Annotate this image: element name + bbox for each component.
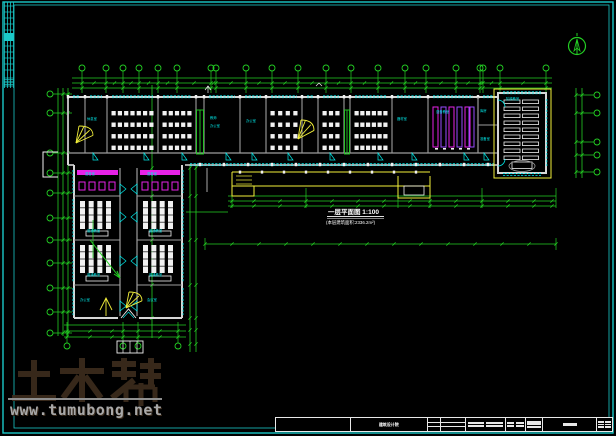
desk bbox=[143, 245, 148, 252]
door-swing bbox=[131, 184, 137, 194]
desk bbox=[143, 259, 148, 266]
stair-fan bbox=[298, 130, 314, 139]
title-block-mark bbox=[605, 421, 611, 423]
title-block-cell bbox=[441, 418, 466, 431]
title-block-grid bbox=[507, 422, 524, 428]
column-mark bbox=[391, 163, 393, 166]
desk bbox=[372, 134, 376, 138]
desk bbox=[293, 134, 297, 138]
title-block: 建筑设计院 bbox=[275, 417, 613, 432]
desk bbox=[160, 259, 165, 266]
watermark-url: www.tumubong.net bbox=[10, 401, 163, 419]
desk bbox=[378, 134, 382, 138]
desk bbox=[169, 134, 173, 138]
door-swing bbox=[120, 184, 126, 194]
lab-band bbox=[140, 170, 180, 175]
column-mark bbox=[203, 95, 205, 98]
column-mark bbox=[295, 163, 297, 166]
column-mark bbox=[106, 95, 108, 98]
desk bbox=[293, 111, 297, 115]
desk bbox=[278, 146, 282, 150]
desk bbox=[151, 259, 156, 266]
desk bbox=[151, 252, 156, 259]
room-label: 普通教室 bbox=[149, 228, 163, 233]
desk bbox=[118, 134, 122, 138]
lab-desk bbox=[162, 182, 168, 190]
desk bbox=[89, 208, 94, 215]
door-swing bbox=[131, 212, 137, 222]
desk bbox=[80, 259, 85, 266]
desk bbox=[335, 111, 339, 115]
axis-bubble bbox=[47, 190, 53, 196]
desk bbox=[149, 146, 153, 150]
lab-band bbox=[77, 170, 118, 175]
title-block-mark bbox=[598, 421, 604, 423]
hall-bench bbox=[504, 128, 520, 132]
column-mark bbox=[427, 95, 429, 98]
column-mark bbox=[391, 95, 393, 98]
axis-bubble bbox=[453, 65, 459, 71]
desk bbox=[187, 146, 191, 150]
desk bbox=[360, 123, 364, 127]
desk bbox=[143, 146, 147, 150]
desk bbox=[168, 215, 173, 222]
title-block-logo bbox=[527, 420, 541, 429]
title-block-cell bbox=[466, 418, 506, 431]
door-swing bbox=[226, 153, 231, 160]
door-swing bbox=[498, 159, 505, 166]
desk bbox=[143, 208, 148, 215]
title-block-mark bbox=[486, 422, 503, 424]
canopy-column bbox=[239, 171, 241, 174]
desk bbox=[149, 111, 153, 115]
desk bbox=[175, 123, 179, 127]
title-block-drawing-name bbox=[563, 423, 577, 426]
desk bbox=[355, 123, 359, 127]
desk bbox=[106, 245, 111, 252]
desk bbox=[366, 111, 370, 115]
desk bbox=[80, 215, 85, 222]
axis-bubble bbox=[47, 330, 53, 336]
desk bbox=[329, 146, 333, 150]
desk bbox=[378, 111, 382, 115]
desk bbox=[271, 111, 275, 115]
desk bbox=[323, 134, 327, 138]
lab-desk bbox=[89, 182, 95, 190]
desk bbox=[80, 252, 85, 259]
title-block-mark bbox=[598, 424, 604, 426]
desk bbox=[181, 111, 185, 115]
desk bbox=[80, 201, 85, 208]
title-block-logo-bar bbox=[527, 426, 541, 428]
entry-door bbox=[121, 309, 136, 318]
desk bbox=[80, 245, 85, 252]
desk bbox=[181, 123, 185, 127]
room-label: 器材室 bbox=[397, 116, 408, 121]
desk bbox=[372, 123, 376, 127]
desk bbox=[323, 146, 327, 150]
hall-bench bbox=[523, 142, 539, 146]
desk bbox=[169, 146, 173, 150]
desk bbox=[278, 111, 282, 115]
title-block-mark bbox=[507, 422, 515, 424]
column-mark bbox=[317, 95, 319, 98]
door-swing bbox=[120, 212, 126, 222]
canopy-column bbox=[305, 171, 307, 174]
title-block-grid bbox=[468, 422, 503, 428]
axis-bubble bbox=[295, 65, 301, 71]
room-label: 教师 bbox=[210, 115, 217, 120]
desk bbox=[293, 146, 297, 150]
desk bbox=[80, 267, 85, 274]
desk bbox=[286, 111, 290, 115]
axis-bubble bbox=[79, 65, 85, 71]
desk bbox=[97, 201, 102, 208]
desk bbox=[163, 146, 167, 150]
axis-bubble bbox=[135, 343, 141, 349]
desk bbox=[124, 123, 128, 127]
title-block-row bbox=[428, 427, 440, 431]
desk bbox=[168, 201, 173, 208]
desk bbox=[112, 146, 116, 150]
desk bbox=[112, 123, 116, 127]
desk bbox=[143, 201, 148, 208]
door-swing bbox=[484, 153, 489, 160]
desk bbox=[175, 134, 179, 138]
axis-bubble bbox=[136, 65, 142, 71]
desk bbox=[278, 123, 282, 127]
desk bbox=[329, 111, 333, 115]
title-block-mark bbox=[507, 425, 515, 427]
axis-bubble bbox=[47, 170, 53, 176]
lab-desk bbox=[109, 182, 115, 190]
column-mark bbox=[67, 95, 69, 98]
lab-bench bbox=[457, 107, 462, 147]
desk bbox=[151, 245, 156, 252]
desk bbox=[89, 259, 94, 266]
desk bbox=[169, 123, 173, 127]
desk bbox=[168, 223, 173, 230]
door-swing bbox=[144, 153, 149, 160]
desk bbox=[323, 123, 327, 127]
title-block-text: 建筑设计院 bbox=[379, 422, 399, 428]
desk bbox=[106, 201, 111, 208]
canopy-column bbox=[393, 171, 395, 174]
column-mark bbox=[343, 163, 345, 166]
title-block-cell bbox=[276, 418, 351, 431]
desk bbox=[97, 215, 102, 222]
axis-bubble bbox=[47, 110, 53, 116]
title-block-mark bbox=[605, 424, 611, 426]
column-mark bbox=[343, 95, 345, 98]
title-block-mark bbox=[516, 422, 524, 424]
title-block-rows bbox=[441, 418, 465, 431]
axis-bubble bbox=[47, 237, 53, 243]
desk bbox=[187, 134, 191, 138]
desk bbox=[160, 208, 165, 215]
column-mark bbox=[367, 163, 369, 166]
axis-bubble bbox=[594, 139, 600, 145]
lab-mark bbox=[435, 148, 438, 150]
desk bbox=[143, 267, 148, 274]
door-swing bbox=[288, 153, 293, 160]
desk bbox=[106, 267, 111, 274]
hall-bench bbox=[504, 114, 520, 118]
desk bbox=[372, 111, 376, 115]
door-swing bbox=[252, 153, 257, 160]
watermark-divider bbox=[8, 398, 162, 400]
room-label: 普通教室 bbox=[87, 228, 101, 233]
title-block-cell bbox=[597, 418, 612, 431]
desk bbox=[130, 134, 134, 138]
hall-bench bbox=[504, 142, 520, 146]
room-label: 会议室 bbox=[147, 297, 158, 302]
desk bbox=[293, 123, 297, 127]
title-block-mark bbox=[605, 426, 611, 428]
axis-bubble bbox=[120, 65, 126, 71]
desk bbox=[271, 123, 275, 127]
desk bbox=[160, 215, 165, 222]
desk bbox=[106, 252, 111, 259]
canopy-column bbox=[327, 171, 329, 174]
generated-drawing: 休息室教师办公室办公室器材室语音教室库房准备室阶梯教室语音室语音室普通教室普通教… bbox=[3, 2, 613, 433]
title-block-logo-bar bbox=[527, 421, 541, 425]
column-mark bbox=[223, 163, 225, 166]
desk bbox=[329, 134, 333, 138]
door-swing bbox=[131, 256, 137, 266]
room-label: 语音教室 bbox=[436, 109, 450, 114]
desk bbox=[169, 111, 173, 115]
desk bbox=[383, 123, 387, 127]
lab-desk bbox=[142, 182, 148, 190]
desk bbox=[168, 252, 173, 259]
axis-bubble bbox=[103, 65, 109, 71]
desk bbox=[143, 111, 147, 115]
level-mark bbox=[205, 86, 211, 93]
column-mark bbox=[463, 163, 465, 166]
canopy-column bbox=[371, 171, 373, 174]
title-block-cell bbox=[506, 418, 526, 431]
desk bbox=[355, 111, 359, 115]
entry-door-swing bbox=[123, 312, 134, 318]
plan-subtitle: (本层建筑面积:2336.2m²) bbox=[326, 219, 376, 226]
column-mark bbox=[271, 163, 273, 166]
desk bbox=[366, 123, 370, 127]
cad-drawing-page: 休息室教师办公室办公室器材室语音教室库房准备室阶梯教室语音室语音室普通教室普通教… bbox=[0, 0, 616, 436]
door-swing bbox=[182, 153, 187, 160]
door-swing bbox=[412, 153, 417, 160]
axis-bubble bbox=[497, 65, 503, 71]
desk bbox=[106, 208, 111, 215]
canopy-column bbox=[261, 171, 263, 174]
door-swing bbox=[120, 256, 126, 266]
desk bbox=[112, 134, 116, 138]
title-block-cell bbox=[428, 418, 441, 431]
page-border-outer bbox=[3, 2, 613, 433]
desk bbox=[163, 134, 167, 138]
axis-bubble bbox=[594, 92, 600, 98]
column-mark bbox=[157, 95, 159, 98]
desk bbox=[112, 111, 116, 115]
title-block-mark bbox=[486, 425, 503, 427]
desk bbox=[80, 208, 85, 215]
desk bbox=[187, 111, 191, 115]
axis-bubble bbox=[47, 309, 53, 315]
desk bbox=[335, 123, 339, 127]
room-label: 普通教室 bbox=[149, 272, 163, 277]
column-mark bbox=[195, 95, 197, 98]
column-mark bbox=[301, 95, 303, 98]
level-mark bbox=[316, 83, 322, 86]
lab-mark bbox=[467, 148, 470, 150]
axis-bubble bbox=[594, 152, 600, 158]
axis-bubble bbox=[47, 91, 53, 97]
axis-bubble bbox=[323, 65, 329, 71]
desk bbox=[378, 123, 382, 127]
desk bbox=[168, 245, 173, 252]
title-block-mark bbox=[468, 425, 485, 427]
room-label: 库房 bbox=[480, 108, 487, 113]
stair-arrow bbox=[100, 298, 112, 316]
desk bbox=[143, 123, 147, 127]
axis-bubble bbox=[64, 343, 70, 349]
desk bbox=[143, 223, 148, 230]
hall-bench bbox=[523, 135, 539, 139]
desk bbox=[151, 215, 156, 222]
room-label: 语音室 bbox=[85, 171, 96, 176]
plan-title: 一层平面图 1:100 bbox=[328, 207, 379, 216]
desk bbox=[137, 134, 141, 138]
title-block-mark bbox=[598, 426, 604, 428]
axis-bubble bbox=[543, 65, 549, 71]
axis-bubble bbox=[243, 65, 249, 71]
axis-bubble bbox=[423, 65, 429, 71]
column-mark bbox=[349, 95, 351, 98]
axis-bubble bbox=[155, 65, 161, 71]
desk bbox=[278, 134, 282, 138]
desk bbox=[97, 259, 102, 266]
hall-bench bbox=[523, 107, 539, 111]
lab-desk bbox=[79, 182, 85, 190]
desk bbox=[335, 146, 339, 150]
room-label: 语音室 bbox=[147, 171, 158, 176]
column-mark bbox=[247, 163, 249, 166]
column-mark bbox=[239, 95, 241, 98]
desk bbox=[124, 134, 128, 138]
desk bbox=[143, 134, 147, 138]
door-swing bbox=[378, 153, 383, 160]
door-swing bbox=[464, 153, 469, 160]
axis-bubble bbox=[175, 343, 181, 349]
hall-bench bbox=[504, 135, 520, 139]
desk bbox=[175, 146, 179, 150]
desk bbox=[137, 111, 141, 115]
desk bbox=[360, 134, 364, 138]
title-block-cell bbox=[526, 418, 544, 431]
desk bbox=[151, 208, 156, 215]
room-label: 办公室 bbox=[210, 123, 221, 128]
title-block-rows bbox=[428, 418, 440, 431]
desk bbox=[106, 215, 111, 222]
desk bbox=[163, 111, 167, 115]
desk bbox=[286, 146, 290, 150]
desk bbox=[80, 223, 85, 230]
desk bbox=[366, 134, 370, 138]
column-mark bbox=[319, 163, 321, 166]
hall-bench bbox=[523, 156, 539, 160]
column-mark bbox=[199, 163, 201, 166]
desk bbox=[137, 123, 141, 127]
lab-bench bbox=[449, 107, 454, 147]
door-swing bbox=[93, 153, 98, 160]
hall-bench bbox=[504, 107, 520, 111]
desk bbox=[160, 252, 165, 259]
column-mark bbox=[84, 95, 86, 98]
desk bbox=[366, 146, 370, 150]
axis-bubble bbox=[348, 65, 354, 71]
canopy-column bbox=[283, 171, 285, 174]
title-block-cell bbox=[543, 418, 597, 431]
porch-landing bbox=[404, 186, 424, 195]
desk bbox=[168, 208, 173, 215]
desk bbox=[143, 252, 148, 259]
column-detail-block bbox=[4, 33, 14, 41]
hall-bench bbox=[523, 128, 539, 132]
lab-mark bbox=[443, 148, 446, 150]
desk bbox=[383, 111, 387, 115]
podium bbox=[512, 162, 532, 169]
lab-desk bbox=[99, 182, 105, 190]
desk bbox=[378, 146, 382, 150]
desk bbox=[124, 111, 128, 115]
desk bbox=[168, 267, 173, 274]
room-label: 阶梯教室 bbox=[506, 96, 520, 101]
stair-fan bbox=[126, 301, 142, 308]
desk bbox=[118, 111, 122, 115]
room-label: 休息室 bbox=[87, 116, 98, 121]
desk bbox=[163, 123, 167, 127]
desk bbox=[271, 146, 275, 150]
desk bbox=[329, 123, 333, 127]
floor-plan-svg: 休息室教师办公室办公室器材室语音教室库房准备室阶梯教室语音室语音室普通教室普通教… bbox=[0, 0, 616, 436]
desk bbox=[149, 123, 153, 127]
desk bbox=[372, 146, 376, 150]
desk bbox=[89, 201, 94, 208]
desk bbox=[383, 146, 387, 150]
hall-wall bbox=[498, 93, 546, 173]
canopy-column bbox=[349, 171, 351, 174]
desk bbox=[143, 215, 148, 222]
axis-bubble bbox=[174, 65, 180, 71]
desk bbox=[271, 134, 275, 138]
axis-bubble bbox=[594, 169, 600, 175]
column-mark bbox=[415, 163, 417, 166]
room-label: 准备室 bbox=[480, 136, 491, 141]
axis-bubble bbox=[594, 110, 600, 116]
axis-bubble bbox=[402, 65, 408, 71]
desk bbox=[106, 223, 111, 230]
lab-mark bbox=[451, 148, 454, 150]
axis-bubble bbox=[47, 260, 53, 266]
column-mark bbox=[487, 163, 489, 166]
axis-bubble bbox=[375, 65, 381, 71]
title-block-mark bbox=[516, 425, 524, 427]
title-block-row bbox=[441, 427, 465, 431]
desk bbox=[360, 111, 364, 115]
desk bbox=[130, 111, 134, 115]
lab-desk bbox=[172, 182, 178, 190]
desk bbox=[160, 245, 165, 252]
